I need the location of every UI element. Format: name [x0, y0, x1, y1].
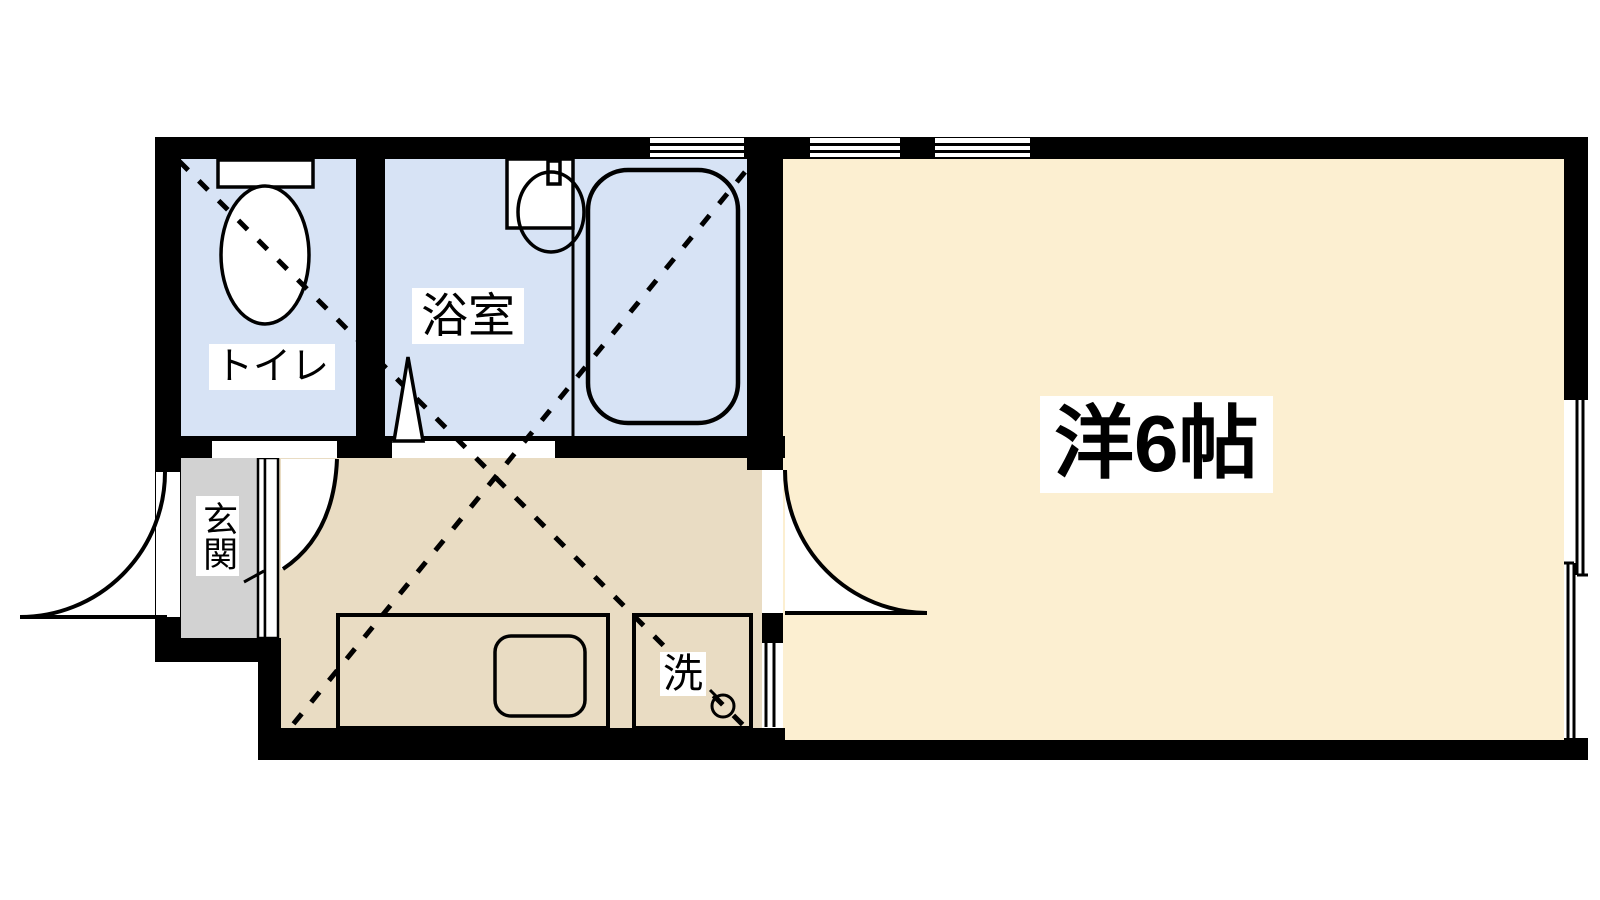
main-room-label: 洋6帖 [1040, 396, 1273, 493]
toilet-door-leaf [265, 458, 278, 638]
main-room-bottom-wall [747, 740, 1588, 760]
entrance-door [20, 472, 167, 617]
laundry-label: 洗 [660, 652, 706, 696]
kitchen-counter [338, 615, 608, 728]
toilet-door-opening [212, 441, 337, 458]
floor-plan: トイレ 浴室 玄関 洗 洋6帖 [0, 0, 1600, 900]
main-room-door-opening [762, 470, 783, 613]
entrance-label: 玄関 [196, 496, 239, 576]
bathroom-door-opening [392, 441, 555, 458]
toilet-tank [218, 160, 313, 187]
corner-connector-wall [258, 638, 281, 760]
bathroom-label: 浴室 [412, 288, 524, 344]
window-top-3 [935, 138, 1030, 157]
window-top-2 [810, 138, 900, 157]
mid-vertical-wall [747, 137, 783, 470]
window-right-sliding [1564, 400, 1588, 738]
kitchen-bottom-wall [258, 728, 785, 760]
toilet-bath-divider-wall [356, 159, 385, 436]
glass-panel-beside-door [762, 643, 783, 727]
mid-wall-block [762, 613, 783, 643]
toilet-bowl [221, 186, 309, 324]
entrance-door-opening [156, 472, 180, 617]
window-top-1 [650, 138, 744, 157]
toilet-room-label: トイレ [209, 344, 335, 390]
floor-plan-drawing [0, 0, 1600, 900]
